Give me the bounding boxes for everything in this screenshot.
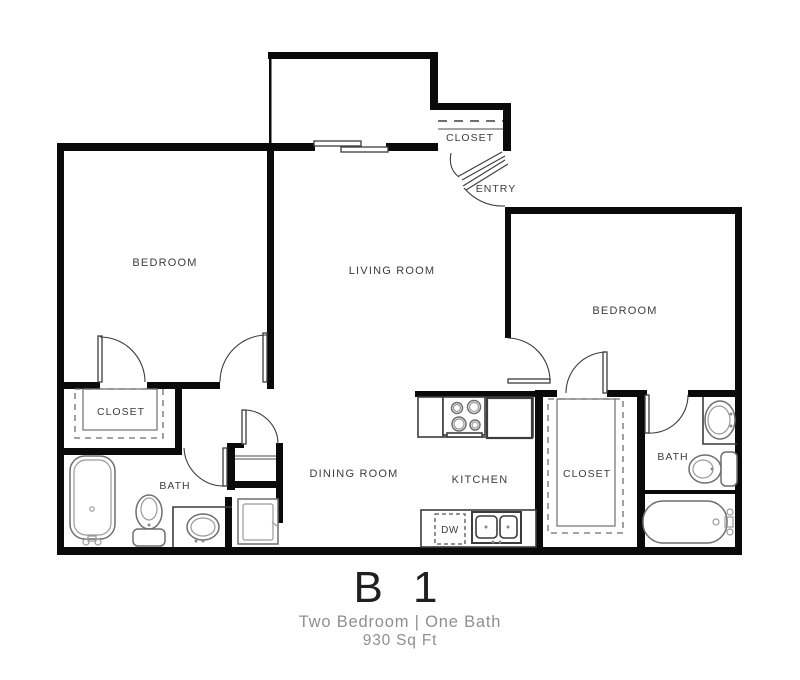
- bath-right-label: BATH: [657, 451, 688, 463]
- plan-area: 930 Sq Ft: [363, 632, 437, 649]
- bedroom-left-label: BEDROOM: [132, 257, 197, 269]
- left-bathtub: [70, 456, 115, 545]
- linen-closet-door: [242, 410, 278, 444]
- floor-plan-drawing: DW BEDROOM LIVING ROOM BEDROO: [0, 0, 800, 680]
- left-bedroom-door: [220, 333, 267, 382]
- right-bathtub: [643, 501, 733, 543]
- entry-closet-shelf: [438, 121, 503, 129]
- left-vanity-sink: [173, 507, 232, 547]
- stove-icon: [443, 397, 485, 437]
- left-toilet: [133, 495, 165, 546]
- entry-closet-label: CLOSET: [446, 132, 494, 144]
- right-closet-shelf: [548, 399, 623, 533]
- entry-label: ENTRY: [476, 183, 516, 195]
- dining-room-label: DINING ROOM: [310, 468, 399, 480]
- right-toilet: [689, 452, 737, 486]
- left-closet-door: [98, 336, 145, 382]
- plan-subtitle: Two Bedroom | One Bath: [299, 613, 502, 631]
- kitchen-label: KITCHEN: [452, 474, 509, 486]
- right-closet-door: [566, 352, 607, 393]
- water-heater: [238, 499, 278, 544]
- right-vanity-sink: [703, 397, 737, 444]
- right-bath-door: [645, 395, 688, 433]
- entry-closet-door: [450, 152, 505, 180]
- linen-shelf: [235, 456, 276, 459]
- room-labels: BEDROOM LIVING ROOM BEDROOM CLOSET ENTRY…: [97, 132, 689, 492]
- closet-left-label: CLOSET: [97, 406, 145, 418]
- closet-right-label: CLOSET: [563, 468, 611, 480]
- refrigerator: [487, 398, 532, 438]
- plan-title: B 1: [353, 563, 446, 612]
- dishwasher-label: DW: [441, 525, 459, 536]
- sliding-door: [314, 141, 388, 152]
- floor-plan-page: DW BEDROOM LIVING ROOM BEDROO: [0, 0, 800, 680]
- bath-left-label: BATH: [159, 480, 190, 492]
- bedroom-right-label: BEDROOM: [592, 305, 657, 317]
- right-bedroom-door: [508, 338, 550, 383]
- title-block: B 1 Two Bedroom | One Bath 930 Sq Ft: [299, 563, 502, 649]
- kitchen-sink-icon: [472, 512, 521, 544]
- living-room-label: LIVING ROOM: [349, 265, 436, 277]
